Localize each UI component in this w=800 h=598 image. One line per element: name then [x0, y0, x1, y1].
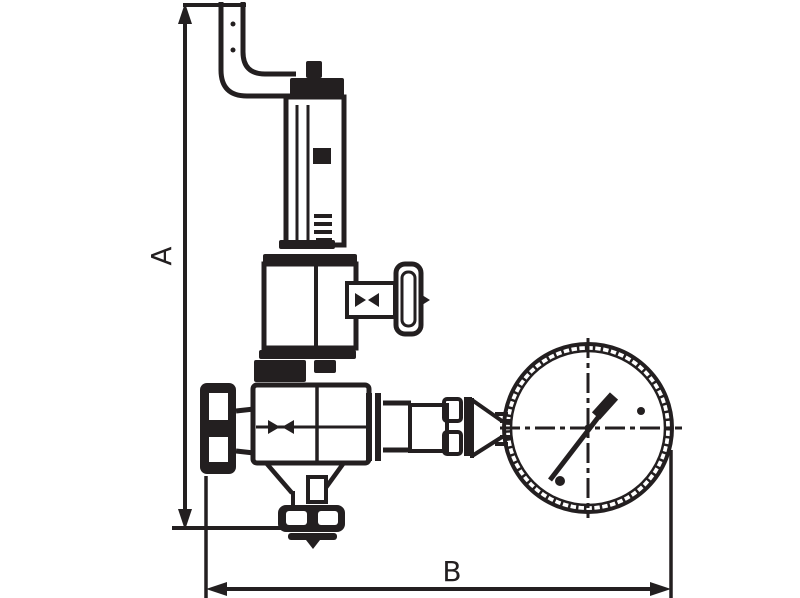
gauge-hub — [585, 425, 592, 432]
bottom-outlet — [267, 464, 345, 549]
pressure-gauge — [500, 338, 682, 518]
adjusting-cap — [306, 61, 322, 78]
handwheel-window — [209, 393, 228, 420]
spring-housing — [263, 61, 357, 265]
flange-window — [318, 511, 338, 525]
dim-b-label: B — [442, 555, 461, 588]
flange-left-block — [254, 360, 306, 382]
union-rib — [375, 393, 381, 461]
pipe-tick — [231, 22, 236, 27]
vent-pipe — [221, 2, 296, 96]
valve-drawing: A B — [0, 0, 800, 598]
cone-bottom — [472, 437, 502, 456]
dim-b-arrow-right-icon — [650, 582, 671, 596]
union-rib — [366, 393, 372, 461]
flange-right-block — [314, 360, 336, 373]
vent-pipe-inner-wall — [243, 2, 296, 74]
flange-window — [286, 511, 307, 525]
drawing-canvas: A B — [0, 0, 800, 598]
outlet-gland — [308, 477, 326, 502]
fitting-box — [410, 405, 447, 451]
housing-base-collar — [279, 240, 335, 249]
gauge-piping — [366, 393, 512, 461]
mid-flange — [254, 350, 356, 382]
needle-tail-dot — [555, 476, 565, 486]
dim-a-label: A — [145, 246, 178, 265]
drain-tip-icon — [306, 540, 320, 549]
housing-top-nut — [290, 78, 344, 97]
bonnet-box — [264, 264, 356, 348]
inlet-stem-top — [236, 409, 254, 411]
valve-body — [253, 385, 369, 463]
flange-band — [259, 350, 356, 359]
dial-dot — [637, 407, 645, 415]
bonnet — [264, 264, 356, 348]
test-valve — [347, 264, 430, 334]
funnel-left — [267, 464, 292, 493]
test-valve-handwheel — [396, 264, 421, 334]
dim-b-arrow-left-icon — [206, 582, 227, 596]
pipe-tick — [231, 48, 236, 53]
inlet-stem-bottom — [236, 451, 254, 453]
stem-tip-icon — [422, 295, 430, 305]
spring-block — [313, 148, 331, 164]
cone-top — [472, 400, 502, 421]
gauge-needle-head — [596, 396, 614, 416]
handwheel-window — [209, 437, 228, 462]
flange-lip — [288, 533, 337, 540]
inlet-valve — [200, 383, 254, 474]
